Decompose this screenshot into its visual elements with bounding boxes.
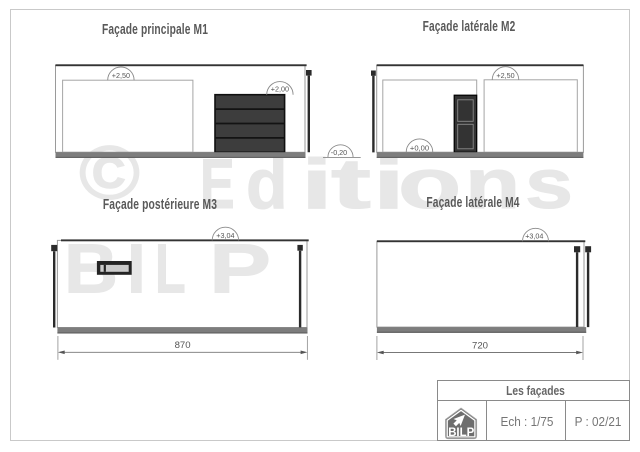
svg-text:+3,04: +3,04	[216, 231, 234, 240]
svg-text:-0,20: -0,20	[331, 148, 347, 157]
svg-text:+0,00: +0,00	[410, 143, 429, 152]
svg-text:+2,50: +2,50	[496, 71, 514, 80]
svg-text:720: 720	[472, 340, 488, 351]
svg-text:BILP: BILP	[448, 425, 474, 439]
svg-text:+2,50: +2,50	[112, 71, 130, 80]
svg-text:+2,00: +2,00	[271, 85, 289, 94]
svg-text:+3,04: +3,04	[525, 232, 543, 241]
svg-text:870: 870	[175, 340, 191, 351]
